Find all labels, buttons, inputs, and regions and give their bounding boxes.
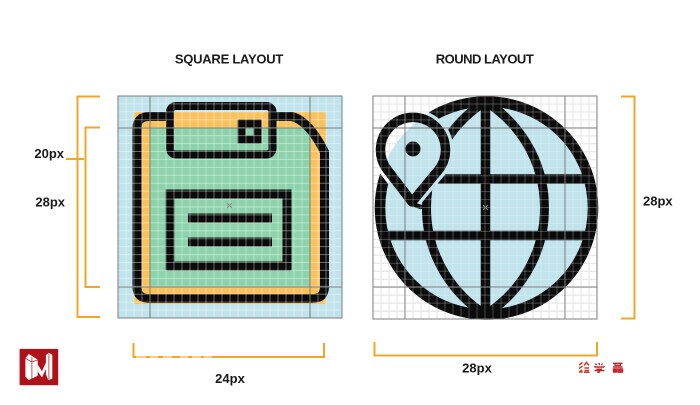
svg-text:28px: 28px: [643, 194, 673, 209]
svg-text:24px: 24px: [215, 371, 245, 386]
svg-text:20px: 20px: [34, 146, 64, 161]
svg-text:28px: 28px: [35, 195, 65, 210]
svg-text:ROUND LAYOUT: ROUND LAYOUT: [436, 52, 534, 67]
svg-text:28px: 28px: [462, 361, 492, 376]
svg-text:SQUARE LAYOUT: SQUARE LAYOUT: [175, 52, 284, 67]
